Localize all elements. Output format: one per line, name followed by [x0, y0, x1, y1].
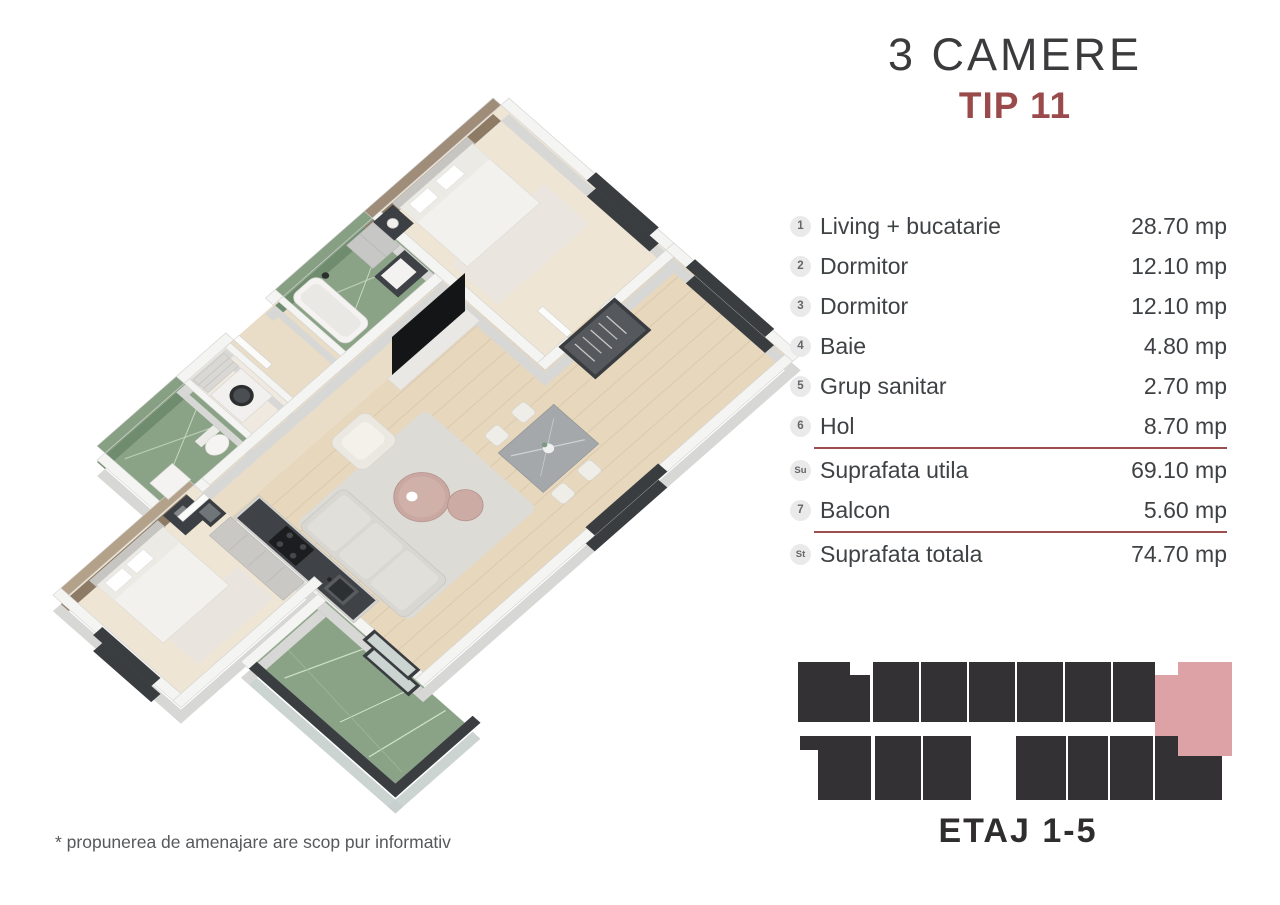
legend-row: 5 Grup sanitar 2.70 mp	[790, 366, 1227, 406]
footprint-unit	[921, 662, 967, 722]
footprint-unit	[1068, 736, 1108, 800]
disclaimer-text: * propunerea de amenajare are scop pur i…	[55, 832, 451, 853]
room-number-badge: 4	[790, 336, 811, 357]
legend-row: 7 Balcon 5.60 mp	[790, 490, 1227, 530]
legend-row: 4 Baie 4.80 mp	[790, 326, 1227, 366]
room-label: Dormitor	[820, 293, 1131, 320]
floor-range-label: ETAJ 1-5	[798, 812, 1238, 851]
room-label: Balcon	[820, 497, 1144, 524]
legend-divider	[814, 447, 1227, 449]
footprint-unit	[1113, 662, 1155, 722]
room-area: 2.70 mp	[1144, 373, 1227, 400]
room-label: Living + bucatarie	[820, 213, 1131, 240]
legend-row: 3 Dormitor 12.10 mp	[790, 286, 1227, 326]
unit-type-label: TIP 11	[790, 84, 1240, 128]
room-number-badge: 3	[790, 296, 811, 317]
floorplan-3d-render	[0, 0, 810, 905]
room-number-badge: St	[790, 544, 811, 565]
footprint-unit	[1017, 662, 1063, 722]
room-label: Suprafata totala	[820, 541, 1131, 568]
footprint-unit	[798, 662, 870, 722]
room-area: 4.80 mp	[1144, 333, 1227, 360]
room-number-badge: 7	[790, 500, 811, 521]
legend-divider	[814, 531, 1227, 533]
brochure-page: 3 CAMERE TIP 11 1 Living + bucatarie 28.…	[0, 0, 1280, 905]
room-area: 74.70 mp	[1131, 541, 1227, 568]
room-number-badge: 5	[790, 376, 811, 397]
room-area: 69.10 mp	[1131, 457, 1227, 484]
legend-row: Su Suprafata utila 69.10 mp	[790, 450, 1227, 490]
legend-row: 6 Hol 8.70 mp	[790, 406, 1227, 446]
footprint-unit	[923, 736, 971, 800]
legend-row: 2 Dormitor 12.10 mp	[790, 246, 1227, 286]
room-number-badge: Su	[790, 460, 811, 481]
room-area: 8.70 mp	[1144, 413, 1227, 440]
room-label: Grup sanitar	[820, 373, 1144, 400]
room-area: 12.10 mp	[1131, 293, 1227, 320]
room-area: 12.10 mp	[1131, 253, 1227, 280]
footprint-unit	[873, 662, 919, 722]
building-footprint-diagram	[798, 658, 1238, 808]
footprint-unit	[800, 736, 871, 800]
room-label: Dormitor	[820, 253, 1131, 280]
legend-row: St Suprafata totala 74.70 mp	[790, 534, 1227, 574]
room-label: Hol	[820, 413, 1144, 440]
footprint-unit	[1016, 736, 1066, 800]
room-area: 5.60 mp	[1144, 497, 1227, 524]
room-number-badge: 6	[790, 416, 811, 437]
room-label: Baie	[820, 333, 1144, 360]
title-block: 3 CAMERE TIP 11	[790, 30, 1240, 128]
room-number-badge: 1	[790, 216, 811, 237]
room-legend: 1 Living + bucatarie 28.70 mp 2 Dormitor…	[790, 206, 1227, 574]
room-label: Suprafata utila	[820, 457, 1131, 484]
room-number-badge: 2	[790, 256, 811, 277]
footprint-unit	[875, 736, 921, 800]
footprint-unit	[1065, 662, 1111, 722]
footprint-unit	[969, 662, 1015, 722]
page-title: 3 CAMERE	[790, 30, 1240, 80]
legend-row: 1 Living + bucatarie 28.70 mp	[790, 206, 1227, 246]
room-area: 28.70 mp	[1131, 213, 1227, 240]
footprint-unit	[1110, 736, 1153, 800]
